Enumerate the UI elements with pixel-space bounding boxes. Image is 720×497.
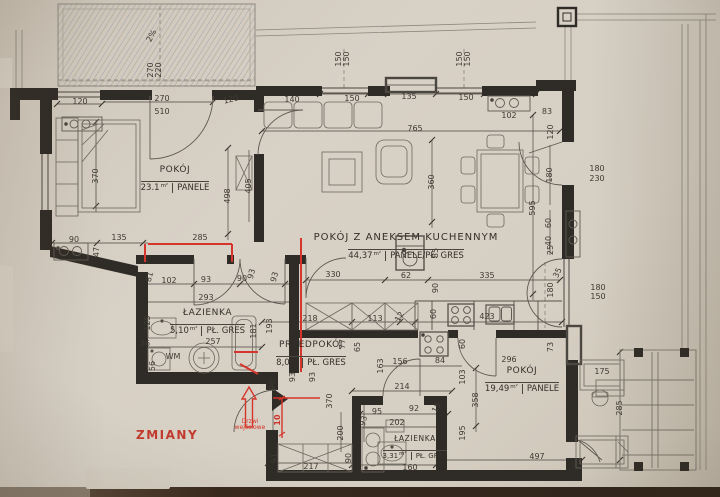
- dimension-label: 202: [389, 419, 404, 427]
- dimension-label: 360: [428, 174, 436, 189]
- dimension-label: 92: [409, 405, 419, 413]
- changes-note: ZMIANY: [136, 428, 198, 442]
- dimension-label: 160: [402, 464, 417, 472]
- dimension-label: 2%: [145, 29, 158, 44]
- dimension-label: 120: [72, 98, 87, 106]
- dimension-label: 195: [459, 425, 467, 440]
- dimension-label: 60: [459, 339, 467, 349]
- dimension-label: 296: [501, 356, 516, 364]
- dimension-label: 73: [547, 342, 555, 352]
- dimension-label: 90: [345, 453, 353, 463]
- dimension-label: 90: [69, 236, 79, 244]
- dimension-label: WM: [166, 353, 181, 361]
- dimension-label: 180: [589, 165, 604, 173]
- dimension-label: 140: [284, 96, 299, 104]
- dimension-label: 91: [271, 453, 279, 463]
- dimension-label: 125: [144, 315, 152, 330]
- dimension-label: 150: [458, 94, 473, 102]
- dimension-label: 510: [154, 108, 169, 116]
- dimension-label: 150: [343, 51, 351, 66]
- dimension-label: 35: [552, 267, 564, 280]
- dimension-label: 60: [545, 218, 553, 228]
- dimension-label: 180: [547, 282, 555, 297]
- dimension-label: 120: [547, 124, 555, 139]
- dimension-label: 25: [547, 245, 555, 255]
- dimension-label: 135: [401, 93, 416, 101]
- dimension-label: 93: [309, 372, 317, 382]
- dimension-label: 65: [354, 342, 362, 352]
- dimension-label: 214: [394, 383, 409, 391]
- dimension-label: 497: [529, 453, 544, 461]
- dimension-label: 150: [464, 51, 472, 66]
- dimension-label: 156: [392, 358, 407, 366]
- dimension-label: 90: [432, 283, 440, 293]
- floorplan-photo: POKÓJ 23.1m² PANELE POKÓJ Z ANEKSEM KUCH…: [0, 0, 720, 497]
- dimension-label: 335: [479, 272, 494, 280]
- dimension-label: 498: [224, 188, 232, 203]
- dimension-label: 15: [431, 402, 443, 415]
- dimension-label: 163: [377, 358, 385, 373]
- dimension-label: 405: [245, 178, 253, 193]
- dimension-label: 150: [590, 293, 605, 301]
- dimension-label: 358: [472, 392, 480, 407]
- dimension-label: 93: [359, 415, 369, 427]
- dimension-label: 47: [93, 247, 101, 257]
- dimension-label: 90: [269, 380, 277, 390]
- dimension-label: 765: [407, 125, 422, 133]
- dimension-label: 370: [326, 393, 334, 408]
- dimension-label: 423: [479, 313, 494, 321]
- dimension-label: 10: [274, 414, 282, 425]
- dimension-label: 230: [589, 175, 604, 183]
- dimension-label: 12: [394, 311, 406, 324]
- dimension-label: 77: [339, 339, 347, 349]
- dimension-label: 93: [247, 268, 257, 280]
- dimension-label: 595: [529, 200, 537, 215]
- dimension-label: 84: [435, 357, 445, 365]
- entrance-door-note: Drzwi wejściowe: [226, 419, 274, 431]
- dimension-label: 102: [161, 277, 176, 285]
- dimension-layer: 2%27022012027051012014015015015013515015…: [0, 0, 720, 497]
- dimension-label: 293: [198, 294, 213, 302]
- dimension-label: 285: [616, 400, 624, 415]
- dimension-label: 102: [501, 112, 516, 120]
- dimension-label: 180: [546, 167, 554, 182]
- dimension-label: 93: [201, 276, 211, 284]
- dimension-label: 93: [270, 271, 280, 283]
- dimension-label: 370: [92, 168, 100, 183]
- dimension-label: 330: [325, 271, 340, 279]
- photo-edge: [0, 487, 720, 497]
- dimension-label: 83: [542, 108, 552, 116]
- dimension-label: 200: [337, 425, 345, 440]
- dimension-label: 218: [302, 315, 317, 323]
- dimension-label: 85: [432, 248, 440, 258]
- dimension-label: 56: [149, 361, 157, 371]
- dimension-label: 120: [223, 94, 240, 105]
- dimension-label: 220: [155, 62, 163, 77]
- dimension-label: 135: [111, 234, 126, 242]
- dimension-label: 217: [303, 463, 318, 471]
- dimension-label: 95: [372, 408, 382, 416]
- dimension-label: 62: [401, 272, 411, 280]
- dimension-label: 175: [594, 368, 609, 376]
- dimension-label: 193: [266, 318, 274, 333]
- dimension-label: 150: [344, 95, 359, 103]
- dimension-label: 81: [145, 271, 155, 283]
- dimension-label: 113: [367, 315, 382, 323]
- dimension-label: 93: [289, 372, 297, 382]
- dimension-label: 36: [140, 340, 150, 348]
- dimension-label: 257: [205, 338, 220, 346]
- dimension-label: 180: [590, 284, 605, 292]
- dimension-label: 270: [154, 95, 169, 103]
- dimension-label: 103: [459, 369, 467, 384]
- dimension-label: 60: [430, 309, 438, 319]
- dimension-label: 181: [250, 323, 258, 338]
- dimension-label: 285: [192, 234, 207, 242]
